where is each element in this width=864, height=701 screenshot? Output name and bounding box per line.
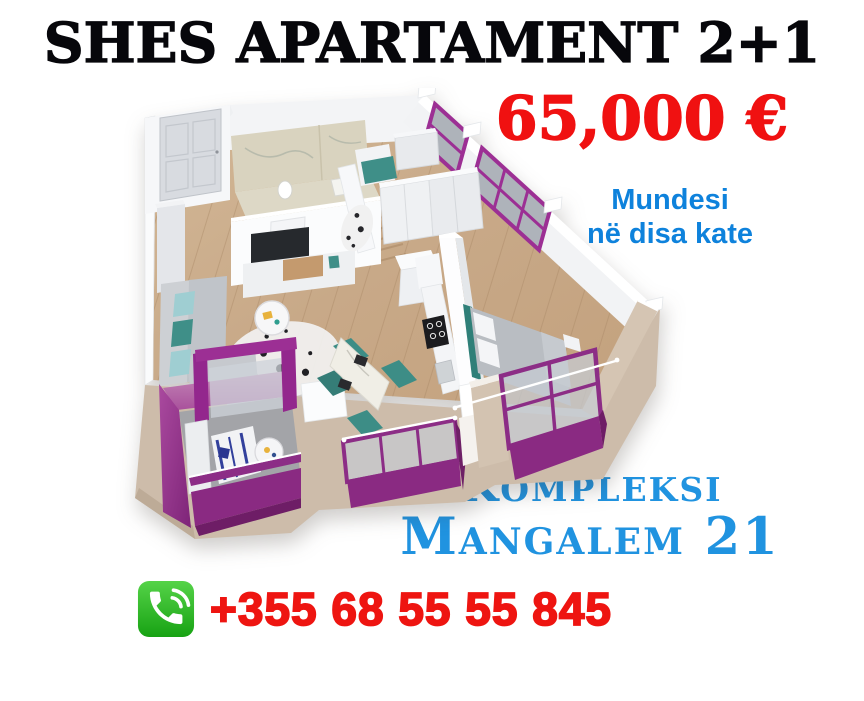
flyer: SHES APARTAMENT 2+1 65,000 € Mundesi në … <box>0 0 864 701</box>
kitchen-sink <box>435 360 455 384</box>
flyer-title: SHES APARTAMENT 2+1 <box>0 10 864 75</box>
contact-row: +355 68 55 55 845 <box>137 580 612 638</box>
dresser <box>395 132 439 170</box>
coffee-table <box>255 301 289 335</box>
floorplan-3d-render <box>133 88 673 550</box>
entry-door <box>160 109 221 201</box>
phone-number: +355 68 55 55 845 <box>210 582 612 636</box>
hall-cabinet <box>157 204 185 293</box>
toilet <box>278 181 292 199</box>
balcony-door-frame <box>193 351 209 424</box>
phone-call-icon <box>137 580 195 638</box>
